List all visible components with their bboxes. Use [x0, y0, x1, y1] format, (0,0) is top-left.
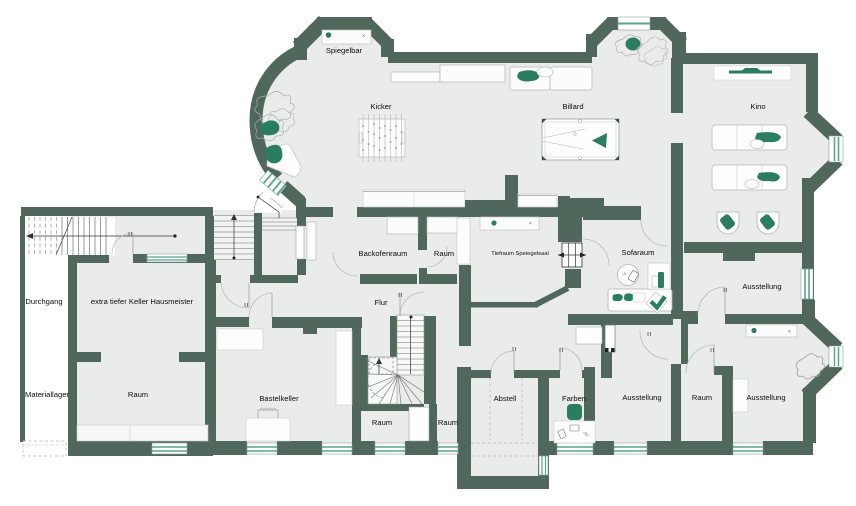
svg-text:×: ×	[529, 221, 532, 227]
svg-text:Kicker: Kicker	[370, 102, 392, 111]
svg-text:Raum: Raum	[438, 418, 458, 427]
svg-text:Flur: Flur	[374, 298, 388, 307]
svg-text:Raum: Raum	[372, 418, 392, 427]
svg-text:Raum: Raum	[434, 249, 454, 258]
svg-text:Farben: Farben	[562, 394, 586, 403]
svg-text:Kino: Kino	[750, 102, 765, 111]
svg-text:Tiefraum Speiegelsaal: Tiefraum Speiegelsaal	[491, 251, 548, 257]
svg-text:extra tiefer Keller Hausmeiste: extra tiefer Keller Hausmeister	[91, 297, 194, 306]
svg-text:Raum: Raum	[692, 393, 712, 402]
svg-text:Durchgang: Durchgang	[25, 297, 62, 306]
svg-text:Spiegelbar: Spiegelbar	[326, 46, 363, 55]
svg-text:×: ×	[362, 34, 365, 40]
svg-text:Bastelkeller: Bastelkeller	[259, 394, 299, 403]
svg-text:Abstell: Abstell	[494, 394, 517, 403]
svg-text:Ausstellung: Ausstellung	[746, 393, 785, 402]
svg-text:Backofenraum: Backofenraum	[359, 249, 408, 258]
svg-text:Ausstellung: Ausstellung	[742, 282, 781, 291]
svg-text:Raum: Raum	[128, 390, 148, 399]
svg-text:Materiallager: Materiallager	[25, 390, 69, 399]
svg-text:Ausstellung: Ausstellung	[622, 393, 661, 402]
svg-text:×: ×	[788, 329, 791, 335]
svg-text:Billard: Billard	[562, 102, 583, 111]
svg-text:Sofaraum: Sofaraum	[622, 248, 655, 257]
